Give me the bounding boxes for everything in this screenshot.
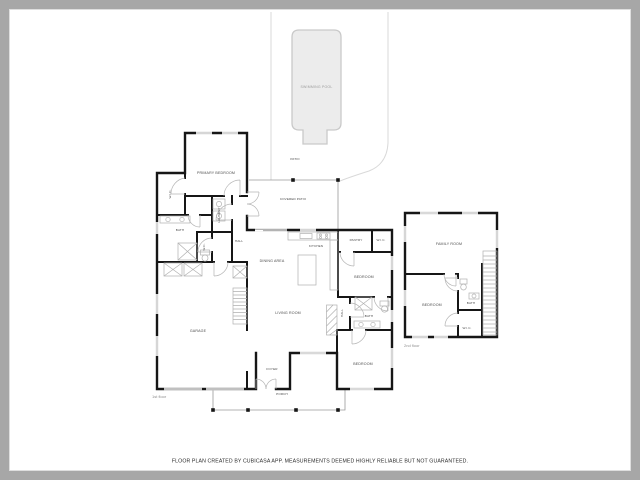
porch-post (211, 408, 215, 412)
room-label-wic-hall: W.I.C. (376, 238, 385, 242)
room-label-hall-2: HALL (340, 309, 344, 317)
room-label-bedroom-mid: BEDROOM (354, 275, 374, 279)
porch-post (246, 408, 250, 412)
room-label-pantry: PANTRY (350, 238, 363, 242)
room-label-primary-bedroom: PRIMARY BEDROOM (197, 171, 235, 175)
room-label-bath-hall: BATH (365, 314, 373, 318)
room-label-wic-primary: W.I.C. (168, 189, 172, 198)
room-label-bedroom-upper: BEDROOM (422, 303, 442, 307)
floor-label-second: 2nd floor (404, 343, 420, 348)
room-label-kitchen: KITCHEN (309, 244, 323, 248)
patio-post (336, 178, 340, 182)
room-label-living-room: LIVING ROOM (275, 311, 301, 315)
room-label-laundry: LAUNDRY (217, 207, 221, 222)
room-label-family-room: FAMILY ROOM (436, 242, 462, 246)
room-label-covered-patio: COVERED PATIO (280, 197, 307, 201)
floor-plan-canvas: SWIMMING POOL PATIO COVERED PATIO PORCH (0, 0, 640, 480)
porch-post (294, 408, 298, 412)
porch-post (336, 408, 340, 412)
room-label-garage: GARAGE (190, 329, 207, 333)
floor-label-first: 1st floor (152, 394, 167, 399)
room-label-bedroom-lower: BEDROOM (353, 362, 373, 366)
room-label-wc: W.C. (202, 243, 206, 250)
room-label-patio: PATIO (290, 157, 300, 161)
footer-disclaimer: FLOOR PLAN CREATED BY CUBICASA APP. MEAS… (172, 459, 468, 465)
room-label-dining-area: DINING AREA (260, 259, 285, 263)
room-label-bath-upper: BATH (467, 301, 475, 305)
room-label-swimming-pool: SWIMMING POOL (301, 85, 333, 89)
room-label-wic-upper: W.I.C. (462, 326, 471, 330)
room-label-porch: PORCH (276, 392, 288, 396)
room-label-hall-1: HALL (235, 239, 243, 243)
patio-post (291, 178, 295, 182)
room-label-foyer: FOYER (266, 367, 278, 371)
room-label-bath-primary: BATH (176, 228, 184, 232)
